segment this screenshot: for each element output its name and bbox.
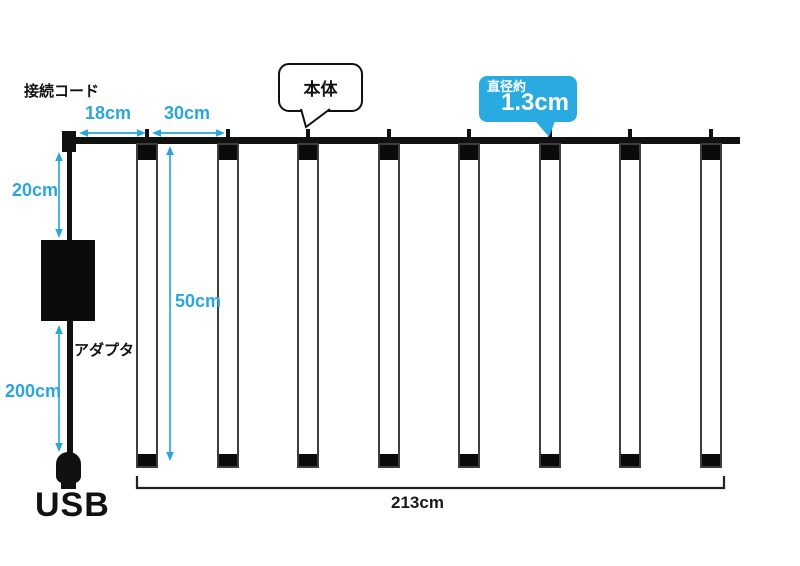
tube-cap-bottom [219,454,237,466]
tube-connector [709,129,713,141]
tube-connector [628,129,632,141]
tube-connector [387,129,391,141]
cord-upper-segment [67,150,72,241]
tube-cap-bottom [138,454,156,466]
light-tube [297,143,319,468]
light-tube [539,143,561,468]
tube-connector [548,129,552,141]
measurement-30cm: 30cm [164,104,210,122]
cord-end-cap [62,131,76,152]
tube-cap-top [621,145,639,160]
tube-cap-bottom [702,454,720,466]
arrow-50cm [166,146,174,461]
tube-cap-bottom [460,454,478,466]
usb-plug-icon [56,452,81,483]
light-tube [458,143,480,468]
annotation-layer [0,0,800,566]
tube-cap-bottom [380,454,398,466]
light-tube [700,143,722,468]
tube-cap-top [299,145,317,160]
tube-cap-top [380,145,398,160]
arrow-30cm [152,129,225,137]
tube-cap-top [460,145,478,160]
usb-label: USB [35,488,110,522]
connection-cord-label: 接続コード [24,84,99,99]
measurement-20cm: 20cm [12,181,58,199]
bracket-213cm [137,476,724,488]
measurement-213cm: 213cm [391,494,444,511]
tube-cap-top [138,145,156,160]
tube-cap-top [702,145,720,160]
cord-lower-segment [67,320,73,454]
main-body-callout: 本体 [278,63,363,112]
measurement-200cm: 200cm [5,382,61,400]
diameter-badge: 直径約 1.3cm [479,76,577,122]
tube-connector [226,129,230,141]
main-body-label: 本体 [304,75,338,100]
diameter-value: 1.3cm [479,91,577,115]
diagram-canvas: 本体 [0,0,800,566]
adapter-label: アダプタ [74,343,134,358]
tube-cap-bottom [299,454,317,466]
tube-cap-bottom [541,454,559,466]
measurement-18cm: 18cm [85,104,131,122]
tube-cap-top [541,145,559,160]
adapter-box [41,240,95,321]
arrow-18cm [79,129,146,137]
tube-cap-top [219,145,237,160]
tube-connector [467,129,471,141]
light-tube [378,143,400,468]
tube-connector [145,129,149,141]
tube-cap-bottom [621,454,639,466]
light-tube [619,143,641,468]
measurement-50cm: 50cm [175,292,221,310]
tube-connector [306,129,310,141]
light-tube [136,143,158,468]
